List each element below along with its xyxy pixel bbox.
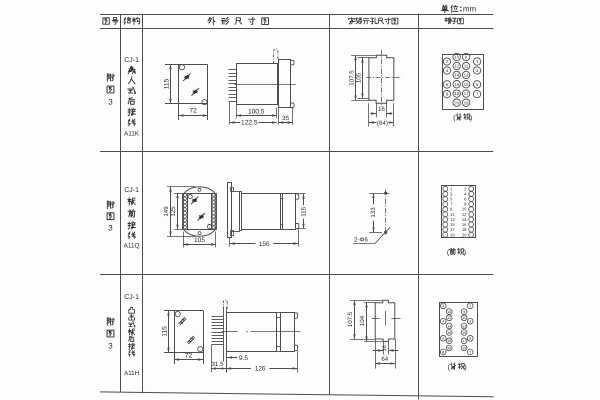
svg-text:11: 11 — [462, 316, 466, 320]
svg-text:35: 35 — [282, 115, 289, 122]
svg-text:18: 18 — [447, 339, 451, 343]
svg-text:133: 133 — [370, 207, 377, 218]
svg-text:10: 10 — [454, 55, 459, 60]
svg-text:107.5: 107.5 — [348, 70, 355, 86]
svg-text:156: 156 — [259, 241, 270, 248]
svg-text:2: 2 — [442, 304, 444, 308]
svg-text:7: 7 — [469, 350, 471, 354]
svg-text:11: 11 — [464, 64, 469, 69]
svg-text:149: 149 — [163, 206, 170, 217]
svg-text:100.5: 100.5 — [248, 108, 265, 115]
svg-text:17: 17 — [462, 339, 466, 343]
svg-text:122.5: 122.5 — [241, 119, 258, 126]
svg-text:16: 16 — [382, 345, 388, 351]
svg-text:72: 72 — [190, 108, 198, 115]
svg-text:17: 17 — [464, 91, 469, 96]
svg-text:115: 115 — [162, 326, 169, 337]
svg-text:107.5: 107.5 — [347, 311, 354, 327]
svg-text:115: 115 — [300, 206, 307, 216]
svg-text:19: 19 — [462, 346, 466, 350]
svg-text:13: 13 — [462, 324, 466, 328]
svg-text:mm: mm — [463, 5, 477, 14]
svg-text:31.5: 31.5 — [211, 361, 224, 368]
svg-text:A11H: A11H — [124, 370, 139, 377]
svg-text:72: 72 — [185, 352, 193, 359]
svg-text:14: 14 — [454, 73, 459, 78]
svg-text:13: 13 — [464, 73, 469, 78]
svg-text:(64): (64) — [377, 120, 388, 127]
svg-text:CJ-1: CJ-1 — [124, 187, 139, 194]
svg-text:14: 14 — [447, 324, 451, 328]
svg-text:4: 4 — [442, 320, 444, 324]
svg-text:10: 10 — [447, 310, 451, 314]
svg-text:CJ-1: CJ-1 — [124, 294, 139, 301]
svg-text:A11Q: A11Q — [124, 243, 140, 250]
svg-text:): ) — [464, 249, 466, 257]
svg-text:19: 19 — [450, 232, 455, 237]
svg-text:3: 3 — [108, 224, 113, 233]
svg-text:105: 105 — [194, 237, 205, 244]
svg-text:126: 126 — [255, 366, 266, 373]
svg-text:20: 20 — [454, 100, 459, 105]
svg-text:12: 12 — [454, 64, 459, 69]
svg-text:16: 16 — [447, 331, 451, 335]
svg-text:64: 64 — [381, 356, 388, 363]
svg-text:18: 18 — [454, 91, 459, 96]
svg-text:9: 9 — [463, 310, 465, 314]
svg-text:2-Φ6: 2-Φ6 — [354, 236, 368, 243]
svg-text:3: 3 — [469, 320, 471, 324]
svg-text:105: 105 — [356, 72, 363, 83]
svg-text:): ) — [464, 363, 466, 371]
svg-text:3: 3 — [108, 342, 113, 351]
svg-text:15: 15 — [462, 331, 466, 335]
svg-text:16: 16 — [454, 82, 459, 87]
svg-text:115: 115 — [163, 78, 170, 89]
svg-text:6: 6 — [442, 337, 444, 341]
svg-text:16: 16 — [378, 106, 385, 113]
svg-text:15: 15 — [464, 82, 469, 87]
svg-text:9.5: 9.5 — [239, 355, 248, 362]
svg-text:12: 12 — [447, 316, 451, 320]
svg-text:125: 125 — [170, 206, 177, 217]
svg-text:20: 20 — [447, 346, 451, 350]
svg-text:5: 5 — [469, 337, 471, 341]
svg-text:104: 104 — [359, 315, 366, 326]
svg-text:19: 19 — [464, 100, 469, 105]
svg-text:20: 20 — [462, 232, 467, 237]
svg-text:CJ-1: CJ-1 — [124, 57, 139, 64]
svg-text:1: 1 — [469, 304, 471, 308]
svg-text:A11K: A11K — [124, 131, 140, 138]
svg-text:8: 8 — [442, 350, 444, 354]
svg-text:3: 3 — [108, 97, 113, 106]
svg-text:): ) — [470, 114, 472, 122]
